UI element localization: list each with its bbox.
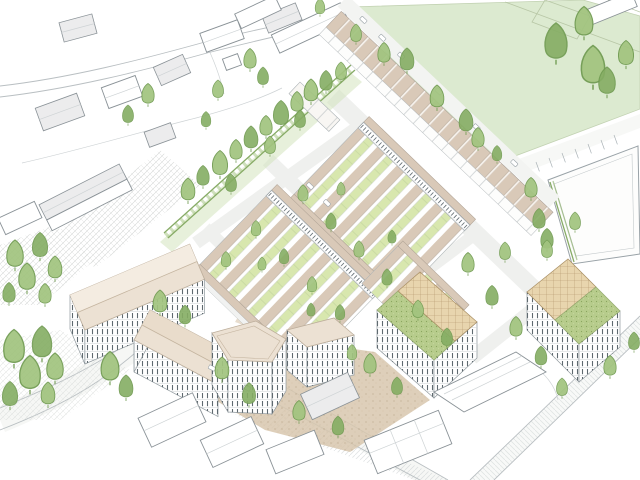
masterplan-illustration	[0, 0, 640, 480]
masterplan-canvas	[0, 0, 640, 480]
